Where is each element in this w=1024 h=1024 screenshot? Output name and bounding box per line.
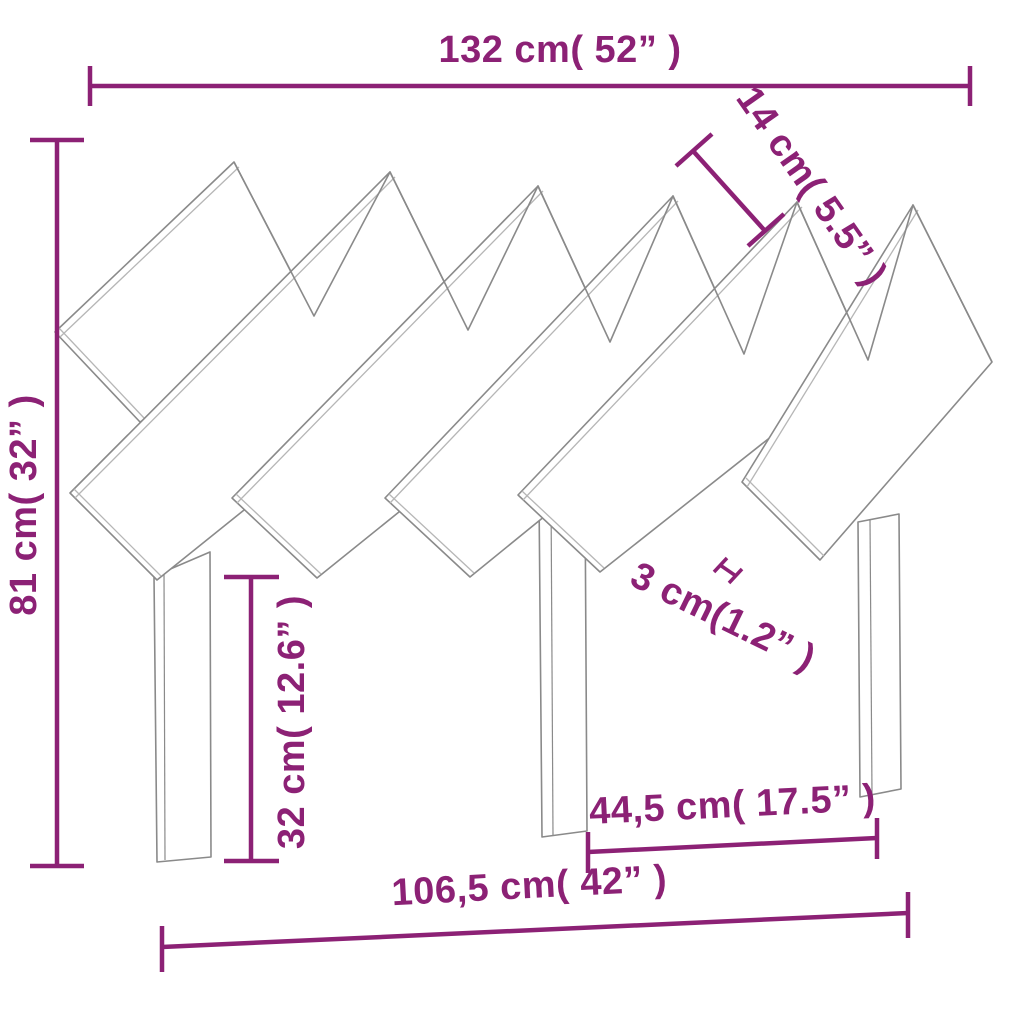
dim-leg-height-label: 32 cm( 12.6” ) <box>271 595 313 849</box>
dim-base-width: 106,5 cm( 42” ) <box>162 858 908 972</box>
dim-overall-width: 132 cm( 52” ) <box>90 29 970 106</box>
dim-board-gap: 3 cm(1.2” ) <box>624 554 822 679</box>
diagram-canvas: 132 cm( 52” ) 14 cm( 5.5” ) 81 cm( 32” )… <box>0 0 1024 1024</box>
dim-overall-height: 81 cm( 32” ) <box>3 140 84 866</box>
leg-right <box>858 514 901 797</box>
dim-leg-span: 44,5 cm( 17.5” ) <box>588 777 877 873</box>
dim-board-gap-label: 3 cm(1.2” ) <box>624 554 822 679</box>
leg-left <box>154 552 211 862</box>
dim-base-width-label: 106,5 cm( 42” ) <box>391 858 669 914</box>
headboard-dimension-drawing: 132 cm( 52” ) 14 cm( 5.5” ) 81 cm( 32” )… <box>0 0 1024 1024</box>
dim-overall-width-label: 132 cm( 52” ) <box>438 29 681 71</box>
dim-board-gap-marker <box>714 558 742 583</box>
dim-leg-height: 32 cm( 12.6” ) <box>224 577 313 861</box>
dim-overall-height-label: 81 cm( 32” ) <box>3 394 45 615</box>
dim-leg-span-label: 44,5 cm( 17.5” ) <box>588 777 877 833</box>
